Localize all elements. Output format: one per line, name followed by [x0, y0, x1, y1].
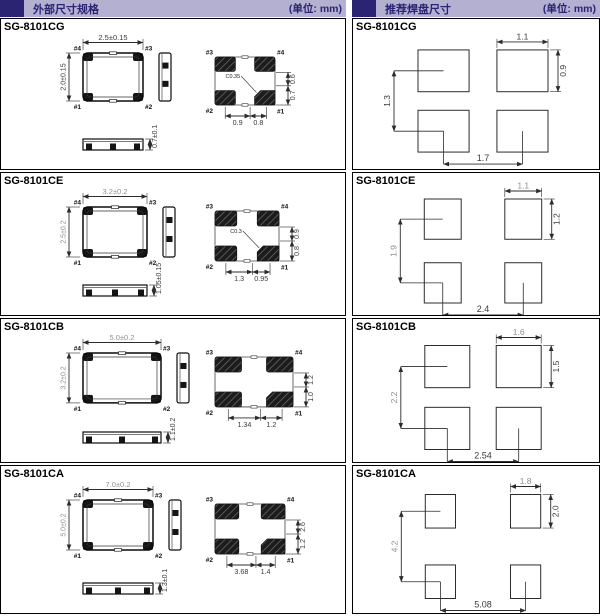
svg-text:7.0±0.2: 7.0±0.2 [106, 480, 131, 489]
svg-text:#4: #4 [74, 200, 82, 207]
svg-text:1.3: 1.3 [234, 274, 244, 283]
external-dimensions-title: 外部尺寸规格 [24, 1, 289, 17]
svg-text:1.8: 1.8 [520, 476, 532, 486]
svg-text:1.1: 1.1 [517, 181, 529, 191]
package-drawing-sg-8101ca: 7.0±0.25.0±0.2#4#3#1#2#3#4#2#12.61.23.68… [1, 466, 345, 613]
svg-text:#4: #4 [295, 350, 303, 357]
model-title: SG-8101CG [4, 21, 65, 33]
svg-text:#1: #1 [74, 553, 82, 560]
land-cell-sg-8101ca: SG-8101CA 1.82.04.25.08 [352, 465, 600, 614]
external-dimensions-unit: (单位: mm) [289, 1, 346, 16]
svg-text:0.9: 0.9 [558, 65, 568, 77]
svg-text:2.54: 2.54 [474, 451, 492, 461]
svg-text:0.8: 0.8 [253, 118, 263, 127]
package-drawing-sg-8101cb: 5.0±0.23.2±0.2#4#3#1#2#3#4#2#11.21.01.34… [1, 319, 345, 462]
svg-text:#1: #1 [287, 558, 295, 565]
svg-text:#3: #3 [206, 204, 214, 211]
svg-text:C0.35: C0.35 [226, 74, 241, 80]
external-dimensions-header: 外部尺寸规格 (单位: mm) [0, 0, 346, 17]
svg-text:#2: #2 [155, 553, 163, 560]
svg-text:2.5±0.2: 2.5±0.2 [61, 220, 68, 243]
svg-text:0.7±0.1: 0.7±0.1 [152, 125, 159, 148]
svg-text:1.1: 1.1 [517, 31, 529, 41]
model-title: SG-8101CE [356, 175, 415, 187]
package-cell-sg-8101cb: SG-8101CB 5.0±0.23.2±0.2#4#3#1#2#3#4#2#1… [0, 318, 346, 463]
land-pattern-column: 推荐焊盘尺寸 (单位: mm) SG-8101CG 1.10.91.31.7 S… [352, 0, 600, 614]
land-pattern-unit: (单位: mm) [543, 1, 600, 16]
land-pattern-title: 推荐焊盘尺寸 [376, 1, 543, 17]
svg-text:#3: #3 [163, 346, 171, 353]
svg-text:4.2: 4.2 [389, 540, 399, 552]
svg-text:1.5: 1.5 [551, 360, 561, 372]
svg-text:#4: #4 [74, 346, 82, 353]
svg-text:2.4: 2.4 [477, 304, 490, 314]
package-drawing-sg-8101ce: 3.2±0.22.5±0.2#4#3#1#2#3#4#2#10.90.81.30… [1, 173, 345, 315]
svg-text:#1: #1 [281, 265, 289, 272]
svg-text:1.4: 1.4 [261, 567, 271, 576]
svg-text:#3: #3 [206, 350, 214, 357]
svg-text:5.08: 5.08 [474, 600, 492, 610]
header-accent-block [352, 0, 376, 17]
svg-text:0.9: 0.9 [233, 118, 243, 127]
header-accent-block [0, 0, 24, 17]
svg-text:2.0±0.15: 2.0±0.15 [61, 63, 68, 90]
svg-text:#3: #3 [149, 200, 157, 207]
svg-text:#1: #1 [277, 109, 285, 116]
svg-text:1.7: 1.7 [477, 153, 490, 163]
svg-text:1.2: 1.2 [300, 539, 307, 549]
svg-text:3.2±0.2: 3.2±0.2 [103, 187, 128, 196]
svg-text:5.0±0.2: 5.0±0.2 [110, 333, 135, 342]
svg-text:1.6: 1.6 [513, 327, 525, 337]
svg-text:3.68: 3.68 [234, 567, 248, 576]
svg-text:#4: #4 [277, 50, 285, 57]
svg-text:#3: #3 [206, 50, 214, 57]
package-drawing-sg-8101cg: 2.5±0.152.0±0.15#4#3#1#2#3#4#2#10.60.70.… [1, 19, 345, 169]
land-cell-sg-8101cb: SG-8101CB 1.61.52.22.54 [352, 318, 600, 463]
svg-text:#2: #2 [206, 108, 214, 115]
svg-text:1.3: 1.3 [382, 95, 392, 107]
svg-text:#2: #2 [206, 410, 214, 417]
svg-text:#4: #4 [74, 493, 82, 500]
svg-text:C0.3: C0.3 [230, 229, 242, 235]
package-cell-sg-8101ce: SG-8101CE 3.2±0.22.5±0.2#4#3#1#2#3#4#2#1… [0, 172, 346, 316]
model-title: SG-8101CA [356, 468, 416, 480]
package-cell-sg-8101ca: SG-8101CA 7.0±0.25.0±0.2#4#3#1#2#3#4#2#1… [0, 465, 346, 614]
svg-text:#2: #2 [163, 406, 171, 413]
svg-text:1.2: 1.2 [266, 420, 276, 429]
svg-text:1.2: 1.2 [552, 213, 562, 225]
svg-text:#1: #1 [74, 406, 82, 413]
land-pattern-drawing-sg-8101cg: 1.10.91.31.7 [353, 19, 599, 169]
svg-text:2.2: 2.2 [389, 391, 399, 403]
land-pattern-drawing-sg-8101ca: 1.82.04.25.08 [353, 466, 599, 613]
svg-text:3.2±0.2: 3.2±0.2 [61, 366, 68, 389]
svg-text:#1: #1 [295, 410, 303, 417]
svg-text:#3: #3 [155, 493, 163, 500]
svg-text:0.9: 0.9 [294, 229, 301, 239]
svg-text:1.0: 1.0 [308, 392, 315, 402]
svg-text:1.2: 1.2 [308, 375, 315, 385]
svg-text:0.95: 0.95 [254, 274, 268, 283]
svg-text:1.9: 1.9 [388, 245, 398, 257]
model-title: SG-8101CB [4, 321, 64, 333]
svg-text:1.34: 1.34 [237, 420, 251, 429]
svg-text:#4: #4 [281, 204, 289, 211]
datasheet-page: 外部尺寸规格 (单位: mm) SG-8101CG 2.5±0.152.0±0.… [0, 0, 600, 616]
svg-text:0.8: 0.8 [294, 246, 301, 256]
svg-text:#2: #2 [145, 104, 153, 111]
svg-text:1.3±0.1: 1.3±0.1 [162, 569, 169, 592]
svg-text:0.7: 0.7 [290, 90, 297, 100]
svg-text:1.05±0.15: 1.05±0.15 [156, 263, 163, 294]
svg-text:#3: #3 [206, 497, 214, 504]
svg-text:#2: #2 [206, 557, 214, 564]
model-title: SG-8101CB [356, 321, 416, 333]
land-pattern-header: 推荐焊盘尺寸 (单位: mm) [352, 0, 600, 17]
svg-text:#3: #3 [145, 46, 153, 53]
package-cell-sg-8101cg: SG-8101CG 2.5±0.152.0±0.15#4#3#1#2#3#4#2… [0, 18, 346, 170]
svg-text:0.6: 0.6 [290, 74, 297, 84]
land-cell-sg-8101ce: SG-8101CE 1.11.21.92.4 [352, 172, 600, 316]
land-cell-sg-8101cg: SG-8101CG 1.10.91.31.7 [352, 18, 600, 170]
model-title: SG-8101CE [4, 175, 63, 187]
external-dimensions-column: 外部尺寸规格 (单位: mm) SG-8101CG 2.5±0.152.0±0.… [0, 0, 346, 614]
svg-text:2.5±0.15: 2.5±0.15 [98, 33, 127, 42]
model-title: SG-8101CA [4, 468, 64, 480]
svg-text:5.0±0.2: 5.0±0.2 [61, 513, 68, 536]
land-pattern-drawing-sg-8101cb: 1.61.52.22.54 [353, 319, 599, 462]
svg-text:2.6: 2.6 [300, 522, 307, 532]
svg-text:#1: #1 [74, 104, 82, 111]
svg-text:2.0: 2.0 [551, 505, 561, 517]
svg-text:#4: #4 [74, 46, 82, 53]
model-title: SG-8101CG [356, 21, 417, 33]
svg-text:#4: #4 [287, 497, 295, 504]
svg-text:#1: #1 [74, 260, 82, 267]
land-pattern-drawing-sg-8101ce: 1.11.21.92.4 [353, 173, 599, 315]
svg-text:1.1±0.2: 1.1±0.2 [170, 418, 177, 441]
svg-text:#2: #2 [206, 264, 214, 271]
